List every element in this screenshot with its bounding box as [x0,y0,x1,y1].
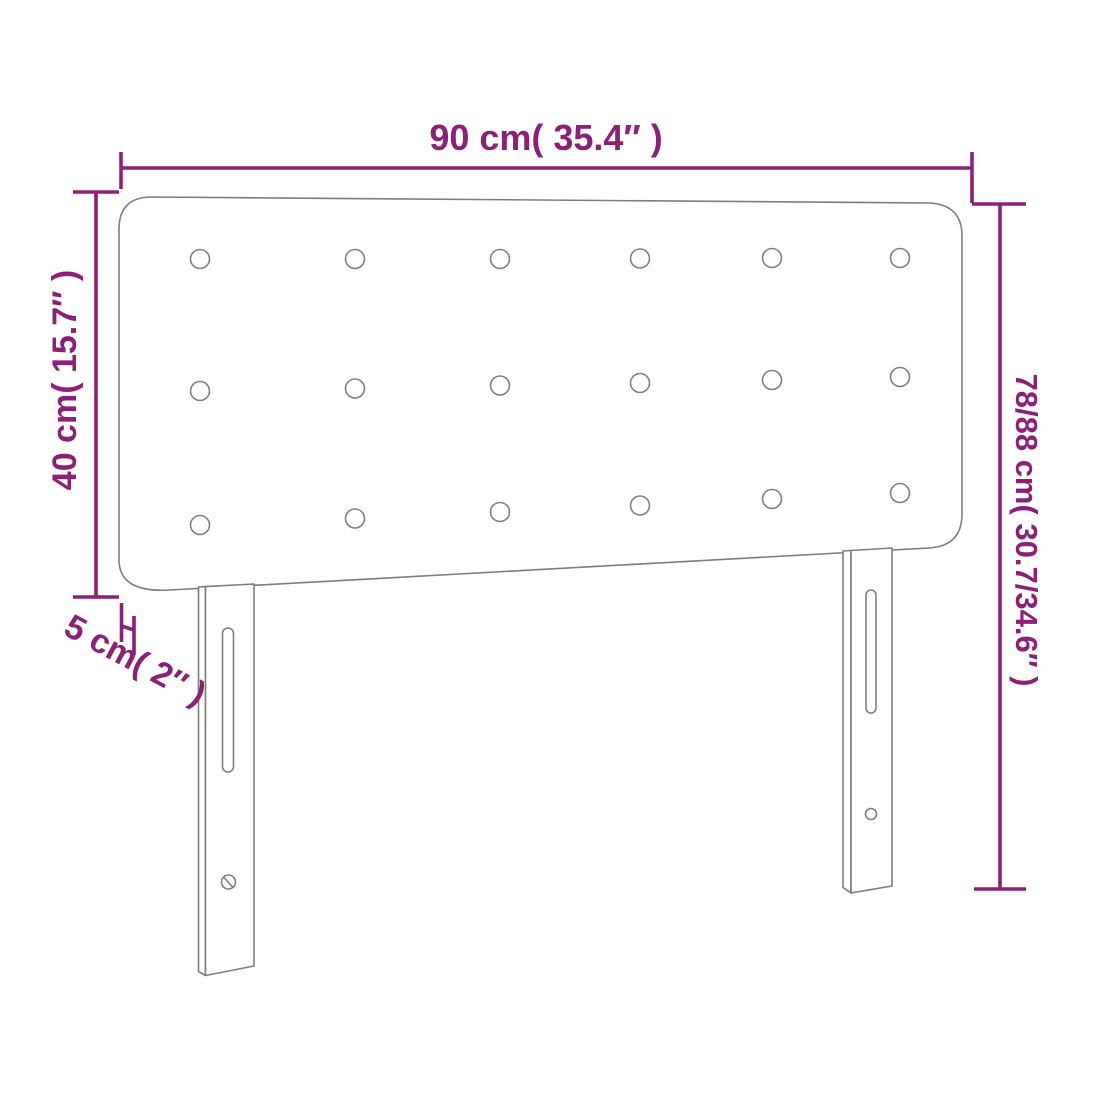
thickness-bracket-crossbar [122,626,135,630]
panel-height-label: 40 cm( 15.7″ ) [46,270,84,490]
width-dimension-label: 90 cm( 35.4″ ) [429,117,662,158]
button-tuft [763,249,782,268]
right-leg-side-face [843,551,851,894]
thickness-dimension: 5 cm( 2″ ) [58,603,212,713]
button-tuft [346,379,365,398]
width-dimension: 90 cm( 35.4″ ) [121,117,972,203]
button-tuft [491,503,510,522]
button-tuft [631,249,650,268]
button-tuft-grid [191,249,910,535]
button-tuft [191,382,210,401]
headboard-outline [119,197,962,590]
button-tuft [763,490,782,509]
headboard-panel [119,197,962,590]
button-tuft [891,484,910,503]
total-height-dimension: 78/88 cm( 30.7/34.6″ ) [972,204,1044,889]
total-height-label: 78/88 cm( 30.7/34.6″ ) [1009,374,1044,687]
button-tuft [631,496,650,515]
button-tuft [191,516,210,535]
button-tuft [191,250,210,269]
headboard-diagram: 90 cm( 35.4″ ) 40 cm( 15.7″ ) 5 cm( 2″ )… [0,0,1100,1100]
button-tuft [491,376,510,395]
button-tuft [891,249,910,268]
button-tuft [346,250,365,269]
button-tuft [891,368,910,387]
button-tuft [346,509,365,528]
left-leg-side-face [199,587,206,976]
button-tuft [631,374,650,393]
right-leg [843,548,892,893]
headboard-diagram-page: 90 cm( 35.4″ ) 40 cm( 15.7″ ) 5 cm( 2″ )… [0,0,1100,1100]
button-tuft [763,371,782,390]
left-leg [199,584,255,976]
panel-height-dimension: 40 cm( 15.7″ ) [46,192,119,597]
right-leg-front-face [851,548,892,893]
button-tuft [491,250,510,269]
left-leg-front-face [206,584,255,976]
